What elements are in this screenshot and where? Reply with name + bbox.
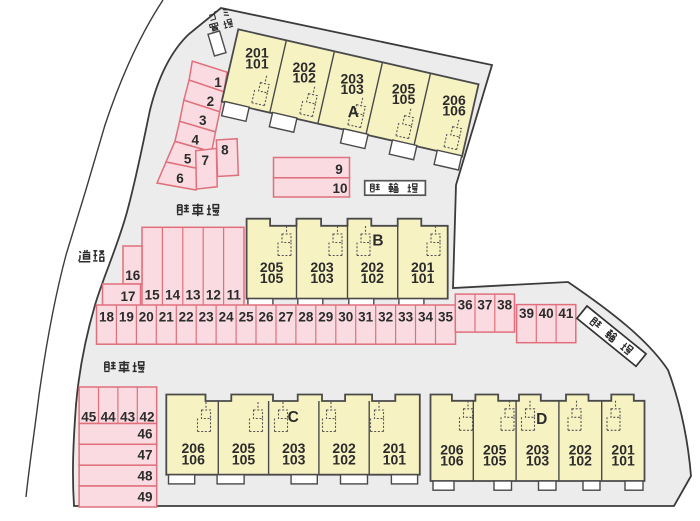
svg-text:2: 2 <box>207 94 215 109</box>
svg-text:27: 27 <box>278 309 293 324</box>
svg-text:106: 106 <box>440 453 464 469</box>
svg-text:19: 19 <box>119 309 134 324</box>
svg-text:46: 46 <box>137 427 153 442</box>
svg-text:26: 26 <box>258 309 274 324</box>
svg-text:106: 106 <box>442 102 466 118</box>
svg-text:105: 105 <box>392 91 416 107</box>
svg-text:9: 9 <box>335 162 343 177</box>
svg-text:32: 32 <box>378 309 393 324</box>
svg-text:45: 45 <box>81 409 97 424</box>
svg-text:34: 34 <box>418 309 434 324</box>
svg-text:101: 101 <box>245 55 269 71</box>
svg-text:42: 42 <box>139 409 154 424</box>
svg-text:6: 6 <box>176 171 184 186</box>
svg-text:22: 22 <box>179 309 194 324</box>
svg-text:15: 15 <box>145 288 161 303</box>
svg-text:14: 14 <box>165 288 181 303</box>
svg-text:43: 43 <box>120 409 136 424</box>
svg-text:20: 20 <box>139 309 154 324</box>
svg-text:105: 105 <box>260 270 284 286</box>
svg-text:21: 21 <box>159 309 175 324</box>
svg-text:39: 39 <box>519 306 534 321</box>
svg-text:40: 40 <box>539 306 554 321</box>
svg-text:33: 33 <box>398 309 414 324</box>
svg-text:13: 13 <box>185 288 201 303</box>
svg-text:103: 103 <box>340 81 364 97</box>
svg-text:B: B <box>372 232 383 249</box>
svg-text:49: 49 <box>137 489 152 504</box>
svg-text:103: 103 <box>526 453 550 469</box>
svg-text:102: 102 <box>332 452 356 468</box>
svg-text:1: 1 <box>214 75 222 90</box>
svg-text:37: 37 <box>477 297 492 312</box>
svg-text:23: 23 <box>199 309 215 324</box>
svg-text:41: 41 <box>558 306 574 321</box>
svg-text:103: 103 <box>310 270 334 286</box>
svg-text:4: 4 <box>191 132 199 147</box>
svg-text:29: 29 <box>318 309 333 324</box>
svg-text:101: 101 <box>611 453 635 469</box>
svg-text:103: 103 <box>282 452 306 468</box>
svg-text:5: 5 <box>184 152 192 167</box>
svg-text:101: 101 <box>383 452 407 468</box>
svg-text:17: 17 <box>120 289 135 304</box>
svg-text:35: 35 <box>438 309 454 324</box>
svg-text:C: C <box>288 409 299 426</box>
svg-text:D: D <box>536 411 547 428</box>
svg-text:102: 102 <box>361 270 385 286</box>
svg-text:38: 38 <box>497 297 513 312</box>
svg-text:47: 47 <box>137 448 152 463</box>
svg-text:44: 44 <box>101 409 117 424</box>
svg-text:102: 102 <box>569 453 593 469</box>
svg-text:31: 31 <box>358 309 374 324</box>
svg-text:16: 16 <box>125 268 141 283</box>
svg-text:8: 8 <box>221 142 229 157</box>
svg-text:30: 30 <box>338 309 353 324</box>
svg-text:36: 36 <box>458 297 474 312</box>
svg-text:3: 3 <box>199 113 207 128</box>
svg-text:12: 12 <box>206 288 221 303</box>
svg-text:A: A <box>348 104 359 121</box>
svg-text:28: 28 <box>298 309 314 324</box>
svg-text:106: 106 <box>182 452 206 468</box>
svg-text:11: 11 <box>227 288 242 303</box>
svg-text:24: 24 <box>219 309 235 324</box>
svg-text:7: 7 <box>202 153 210 168</box>
svg-text:102: 102 <box>293 70 317 86</box>
svg-text:105: 105 <box>232 452 256 468</box>
svg-text:48: 48 <box>137 468 153 483</box>
svg-text:18: 18 <box>99 309 115 324</box>
svg-text:10: 10 <box>332 181 347 196</box>
svg-text:25: 25 <box>239 309 255 324</box>
svg-text:101: 101 <box>411 270 435 286</box>
svg-text:105: 105 <box>483 453 507 469</box>
